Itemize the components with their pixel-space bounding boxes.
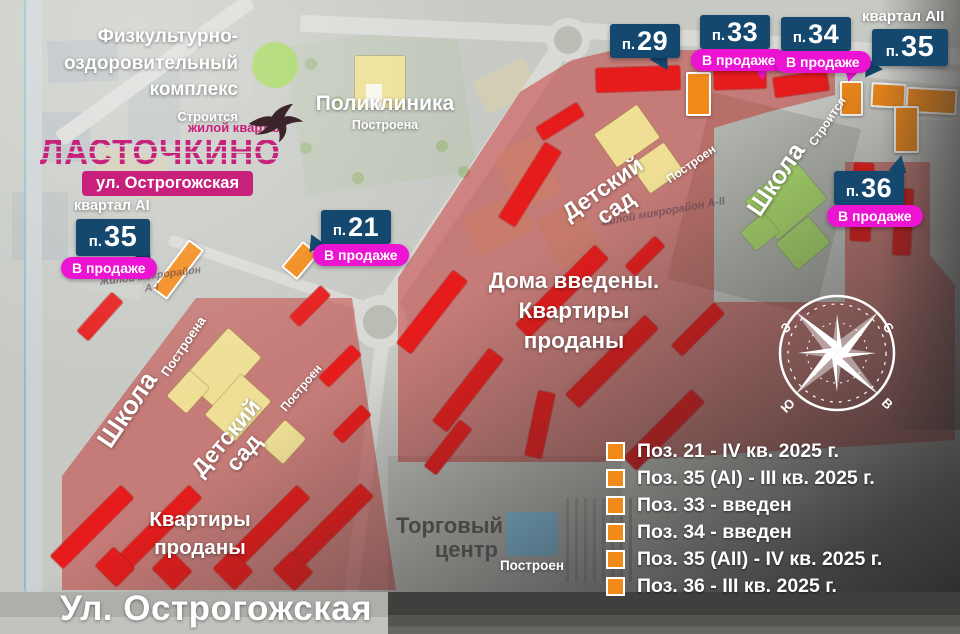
badge-p34[interactable]: п. 34 — [781, 17, 851, 51]
mall-status: Построен — [498, 558, 566, 573]
swallow-icon — [246, 96, 306, 150]
sale-pill-p21: В продаже — [313, 244, 409, 266]
sale-pill-p35ai: В продаже — [61, 257, 157, 279]
sale-pill-p33: В продаже — [691, 49, 787, 71]
badge-prefix: п. — [793, 29, 806, 46]
sold-left-line: Квартиры — [118, 506, 282, 534]
badge-number: 29 — [637, 28, 668, 55]
badge-number: 34 — [808, 21, 839, 48]
legend-row: Поз. 34 - введен — [606, 519, 882, 546]
fok-label: Физкультурно- оздоровительный комплекс С… — [18, 24, 238, 126]
sold-center-label: Дома введены. Квартиры проданы — [468, 266, 680, 356]
fok-line: комплекс — [18, 77, 238, 104]
legend-row: Поз. 36 - III кв. 2025 г. — [606, 573, 882, 600]
badge-number: 33 — [727, 19, 758, 46]
badge-prefix: п. — [333, 222, 346, 239]
badge-p35ai[interactable]: п. 35 — [76, 219, 150, 256]
sold-center-line: Дома введены. — [468, 266, 680, 296]
brand-street-band: ул. Острогожская — [82, 171, 253, 196]
legend-text: Поз. 33 - введен — [637, 494, 792, 517]
quarter-aii-label: квартал AII — [862, 8, 944, 25]
badge-p33[interactable]: п. 33 — [700, 15, 770, 49]
compass-rose: З С Ю В — [770, 286, 904, 420]
tree — [352, 172, 364, 184]
legend: Поз. 21 - IV кв. 2025 г. Поз. 35 (AI) - … — [606, 438, 882, 600]
compass-south: Ю — [778, 396, 798, 416]
polyclinic-label: Поликлиника Построена — [303, 92, 467, 132]
legend-swatch-orange — [606, 496, 625, 515]
sale-pill-p36: В продаже — [827, 205, 923, 227]
legend-swatch-orange — [606, 550, 625, 569]
legend-text: Поз. 21 - IV кв. 2025 г. — [637, 440, 839, 463]
legend-text: Поз. 35 (AII) - IV кв. 2025 г. — [637, 548, 882, 571]
roundabout-top — [546, 18, 590, 62]
street-name: Ул. Острогожская — [60, 589, 372, 629]
fok-line: оздоровительный — [18, 51, 238, 78]
badge-number: 36 — [861, 175, 892, 202]
building-for-sale-p35aii — [870, 82, 906, 109]
badge-p29[interactable]: п. 29 — [610, 24, 680, 58]
badge-prefix: п. — [886, 43, 899, 60]
polyclinic-status: Построена — [303, 118, 467, 132]
legend-row: Поз. 35 (AII) - IV кв. 2025 г. — [606, 546, 882, 573]
legend-swatch-orange — [606, 523, 625, 542]
legend-text: Поз. 35 (AI) - III кв. 2025 г. — [637, 467, 875, 490]
legend-row: Поз. 35 (AI) - III кв. 2025 г. — [606, 465, 882, 492]
badge-prefix: п. — [846, 183, 859, 200]
badge-p35aii[interactable]: п. 35 — [872, 29, 948, 66]
legend-text: Поз. 34 - введен — [637, 521, 792, 544]
sold-center-line: Квартиры — [468, 296, 680, 326]
tree — [436, 140, 448, 152]
sold-left-label: Квартиры проданы — [118, 506, 282, 561]
mall-title-line: центр — [396, 538, 498, 562]
legend-row: Поз. 33 - введен — [606, 492, 882, 519]
masterplan-map: Ул. Острогожская Физкультурно- оздоровит… — [0, 0, 960, 634]
badge-number: 35 — [901, 33, 934, 62]
sale-pill-p34: В продаже — [775, 51, 871, 73]
polyclinic-title: Поликлиника — [303, 92, 467, 116]
building-for-sale-p36 — [894, 106, 919, 153]
quarter-ai-label: квартал AI — [74, 198, 150, 214]
badge-prefix: п. — [89, 233, 102, 250]
badge-prefix: п. — [622, 36, 635, 53]
badge-p21[interactable]: п. 21 — [321, 210, 391, 244]
building-sold — [596, 66, 681, 93]
compass-east: В — [879, 395, 896, 412]
compass-west: З — [777, 319, 793, 335]
sold-left-line: проданы — [118, 534, 282, 562]
badge-p36[interactable]: п. 36 — [834, 171, 904, 205]
sold-center-line: проданы — [468, 326, 680, 356]
badge-number: 35 — [104, 223, 137, 252]
mall-building — [506, 512, 558, 556]
fok-line: Физкультурно- — [18, 24, 238, 51]
badge-number: 21 — [348, 214, 379, 241]
mall-label: Торговый центр — [396, 514, 498, 562]
legend-swatch-orange — [606, 469, 625, 488]
legend-text: Поз. 36 - III кв. 2025 г. — [637, 575, 837, 598]
legend-row: Поз. 21 - IV кв. 2025 г. — [606, 438, 882, 465]
badge-prefix: п. — [712, 27, 725, 44]
green-field — [252, 42, 298, 88]
legend-swatch-orange — [606, 577, 625, 596]
legend-swatch-orange — [606, 442, 625, 461]
mall-title-line: Торговый — [396, 514, 498, 538]
tree — [305, 58, 317, 70]
